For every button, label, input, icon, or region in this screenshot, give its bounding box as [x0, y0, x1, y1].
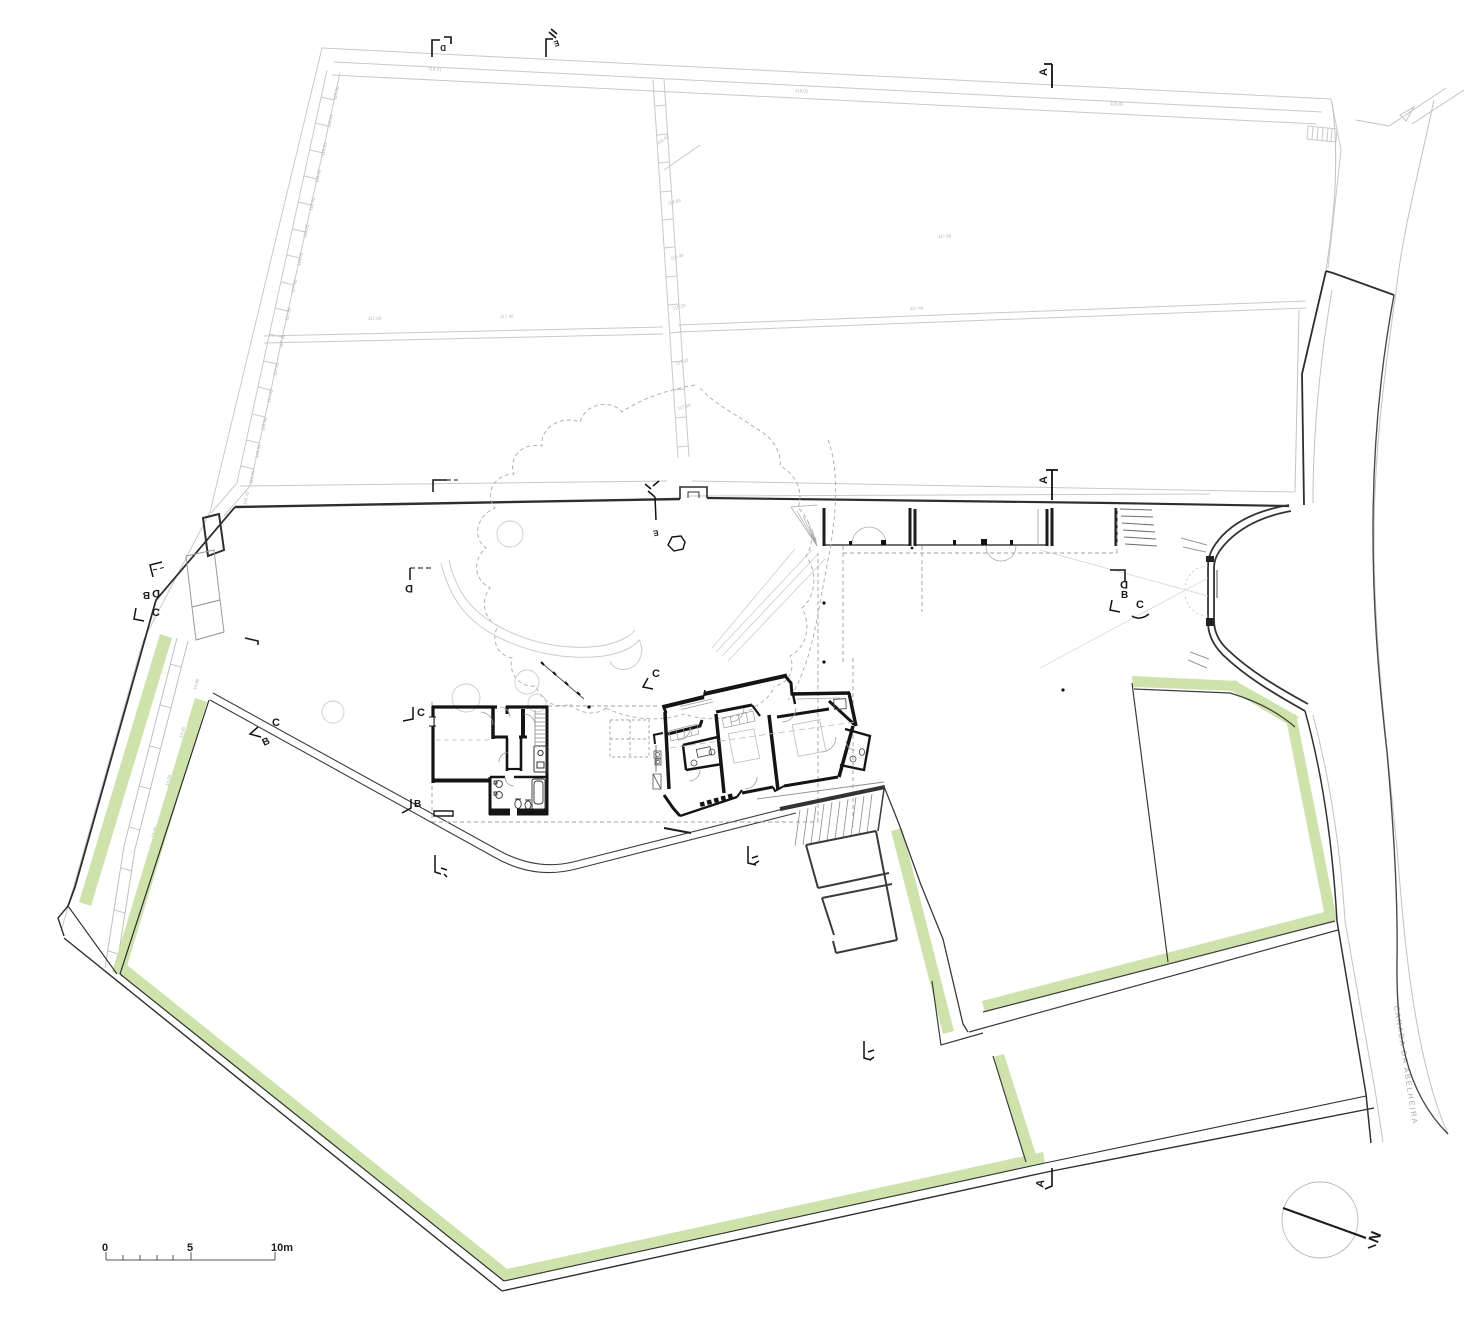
- svg-text:0: 0: [102, 1242, 108, 1254]
- svg-text:B: B: [1121, 590, 1128, 601]
- svg-text:117.40: 117.40: [500, 314, 514, 319]
- svg-text:117.44: 117.44: [910, 306, 924, 311]
- svg-text:C: C: [152, 607, 160, 619]
- svg-text:A: A: [1038, 68, 1050, 76]
- svg-text:B: B: [414, 799, 421, 810]
- svg-text:117.88: 117.88: [938, 234, 952, 239]
- svg-text:D: D: [152, 587, 160, 599]
- svg-text:B: B: [143, 589, 150, 600]
- svg-text:D: D: [1120, 578, 1128, 590]
- svg-text:C: C: [1136, 599, 1144, 611]
- svg-text:C: C: [652, 668, 660, 680]
- svg-text:5: 5: [187, 1242, 193, 1254]
- svg-text:D: D: [440, 43, 446, 52]
- svg-text:A: A: [1038, 476, 1050, 484]
- svg-text:C: C: [417, 707, 425, 719]
- svg-text:117.60: 117.60: [368, 316, 382, 321]
- svg-text:119.85: 119.85: [1110, 101, 1124, 107]
- svg-text:10m: 10m: [271, 1242, 293, 1254]
- svg-text:119.02: 119.02: [795, 88, 809, 94]
- svg-text:D: D: [405, 582, 413, 594]
- svg-text:C: C: [272, 717, 280, 729]
